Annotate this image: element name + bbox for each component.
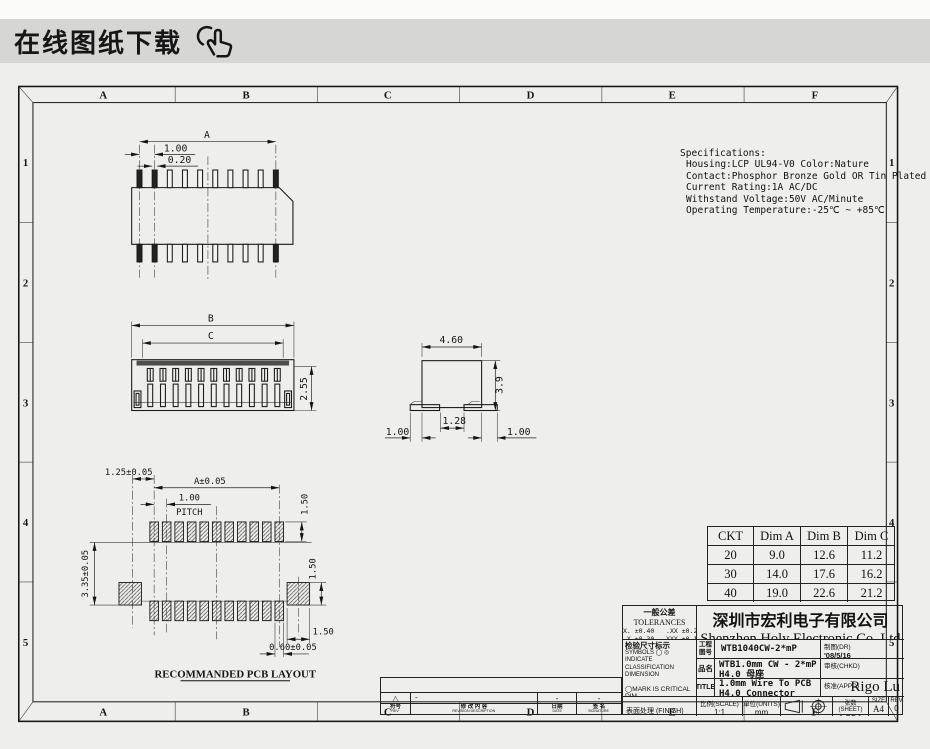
table-header: Dim B [801, 527, 848, 546]
table-cell: 14.0 [754, 565, 801, 584]
banner-title[interactable]: 在线图纸下载 [14, 23, 182, 60]
sheet-cell: 张数(SHEET) 1 OF 1 [833, 697, 869, 716]
dim-label-height: 2.55 [299, 377, 310, 401]
pcb-pads [119, 522, 310, 621]
zone-label: E [669, 90, 676, 102]
size-cell: SIZE A4 [869, 697, 889, 716]
zone-numbers-left: 1 2 3 4 5 [23, 157, 29, 649]
dim-label-gap: 1.28 [442, 416, 466, 427]
inspection-block: 检验尺寸标示 SYMBOLS ◯ ◎ INDICATE CLASSIFICATI… [623, 640, 697, 697]
top-view-drawing: A 1.00 0.20 [125, 130, 293, 282]
zone-label: 4 [23, 517, 29, 529]
dim-label-pad-h: 1.50 [301, 494, 311, 515]
specifications: Specifications: Housing:LCP UL94-V0 Colo… [680, 148, 926, 216]
side-view-drawing: 4.60 3.9 1.28 1.00 1.00 [385, 335, 537, 442]
dim-label-foot-right: 1.00 [507, 427, 531, 438]
specs-title: Specifications: [680, 148, 926, 159]
scale-cell: 比例(SCALE) 1:1 [697, 697, 743, 716]
online-drawing-download-banner[interactable]: 在线图纸下载 [0, 19, 930, 63]
dim-label-pad-w: 0.60±0.05 [269, 643, 317, 653]
dim-label-pitch: 1.00 [164, 143, 188, 154]
appd-cell: 核准(APPD) Rigo Lu [821, 679, 904, 697]
table-header: Dim C [848, 527, 895, 546]
dim-label-b: B [208, 314, 214, 325]
spec-line: Contact:Phosphor Bronze Gold OR Tin Plat… [680, 171, 926, 182]
spec-line: Housing:LCP UL94-V0 Color:Nature [680, 159, 926, 170]
part-label: 品名 [697, 659, 715, 679]
zone-label: 2 [889, 277, 894, 289]
dim-label-row-h: 3.35±0.05 [81, 550, 91, 598]
table-cell: 20 [708, 546, 754, 565]
table-cell: 17.6 [801, 565, 848, 584]
dim-label-sq-h: 1.50 [308, 558, 318, 579]
title-value: 1.0mm Wire To PCB H4.0 Connector [715, 679, 821, 697]
dim-label-edge: 1.25±0.05 [105, 468, 153, 478]
units-cell: 单位(UNITS) mm [743, 697, 781, 716]
projection-symbol-cell [781, 697, 833, 716]
title-block: 一般公差 TOLERANCES X. ±0.40 .XX ±0.20 .X ±0… [622, 605, 903, 715]
eng-no-value: WTB1040CW-2*mP [715, 640, 821, 659]
revision-mark: △ [381, 693, 411, 704]
dim-label-a: A [204, 130, 210, 141]
page: { "banner": { "title": "在线图纸下载", "icon":… [0, 0, 930, 749]
part-value: WTB1.0mm CW - 2*mP H4.0 母座 [715, 659, 821, 679]
table-cell: 9.0 [754, 546, 801, 565]
dim-label-width: 4.60 [440, 335, 464, 346]
eng-no-label: 工程图号 [697, 640, 715, 659]
zone-label: B [242, 706, 249, 718]
dim-label-pitch: 1.00 [179, 493, 200, 503]
zone-label: A [99, 90, 107, 102]
table-cell: 21.2 [848, 584, 895, 602]
zone-label: 2 [23, 277, 28, 289]
dr-cell: 制图(DR) '08/5/16 [821, 640, 904, 659]
revision-table: △ - - - 符号REV 修 改 内 容REVISION DESCRIPTIO… [380, 677, 622, 715]
revision-header: 日期DATE [538, 704, 577, 714]
rev-cell: REV 0 [889, 697, 904, 716]
dimension-table: CKT Dim A Dim B Dim C 20 9.0 12.6 11.2 3… [707, 526, 895, 601]
revision-sign: - [577, 693, 621, 704]
front-view-drawing: B C 2.55 [132, 314, 317, 411]
revision-header: 签 名SIGNATURE [577, 704, 621, 714]
zone-label: D [527, 90, 535, 102]
company-name-cn: 深圳市宏利电子有限公司 [697, 607, 904, 631]
zone-label: F [812, 90, 819, 102]
table-cell: 19.0 [754, 584, 801, 602]
dim-label-pitch-word: PITCH [176, 508, 202, 518]
table-cell: 22.6 [801, 584, 848, 602]
dr-date: '08/5/16 [824, 651, 904, 659]
table-header: Dim A [754, 527, 801, 546]
pcb-layout-caption: RECOMMANDED PCB LAYOUT [155, 668, 316, 680]
company-name-en: Shenzhen Holy Electronic Co.,Ltd [697, 631, 904, 640]
zone-label: 3 [23, 398, 28, 410]
dim-label-foot-left: 1.00 [386, 427, 410, 438]
spec-line: Operating Temperature:-25℃ ~ +85℃ [680, 205, 926, 216]
zone-label: 1 [23, 157, 28, 169]
revision-date: - [538, 693, 577, 704]
zone-label: C [384, 90, 392, 102]
top-margin [0, 0, 930, 19]
revision-header: 符号REV [381, 704, 411, 714]
dim-label-c: C [208, 331, 214, 342]
table-cell: 16.2 [848, 565, 895, 584]
table-cell: 11.2 [848, 546, 895, 565]
zone-label: 5 [23, 637, 28, 649]
hand-click-cursor-icon[interactable] [192, 22, 236, 60]
dim-label-height: 3.9 [495, 376, 506, 394]
dim-label-pin-width: 0.20 [168, 155, 192, 166]
tolerance-block: 一般公差 TOLERANCES X. ±0.40 .XX ±0.20 .X ±0… [623, 606, 697, 640]
appd-signature: Rigo Lu [850, 679, 900, 696]
chkd-cell: 审核(CHKD) [821, 659, 904, 679]
dim-label-a-tol: A±0.05 [194, 477, 226, 487]
zone-label: A [99, 706, 107, 718]
table-cell: 40 [708, 584, 754, 602]
company-cell: 深圳市宏利电子有限公司 Shenzhen Holy Electronic Co.… [697, 606, 904, 640]
zone-label: B [242, 90, 249, 102]
third-angle-projection-icon [782, 698, 832, 715]
pcb-layout-drawing: 1.25±0.05 A±0.05 1.00 PITCH 1.50 3.35±0.… [81, 468, 334, 681]
table-cell: 30 [708, 565, 754, 584]
table-cell: 12.6 [801, 546, 848, 565]
revision-desc: - [411, 693, 538, 704]
finish-cell: 表面处理 (FINISH) [623, 697, 697, 716]
zone-label: 3 [889, 398, 894, 410]
spec-line: Current Rating:1A AC/DC [680, 182, 926, 193]
title-label: TITLE [697, 679, 715, 697]
revision-header: 修 改 内 容REVISION DESCRIPTION [411, 704, 538, 714]
zone-letters-top: A B C D E F [99, 90, 818, 102]
spec-line: Withstand Voltage:50V AC/Minute [680, 194, 926, 205]
table-header: CKT [708, 527, 754, 546]
dim-label-sq-w: 1.50 [313, 627, 334, 637]
